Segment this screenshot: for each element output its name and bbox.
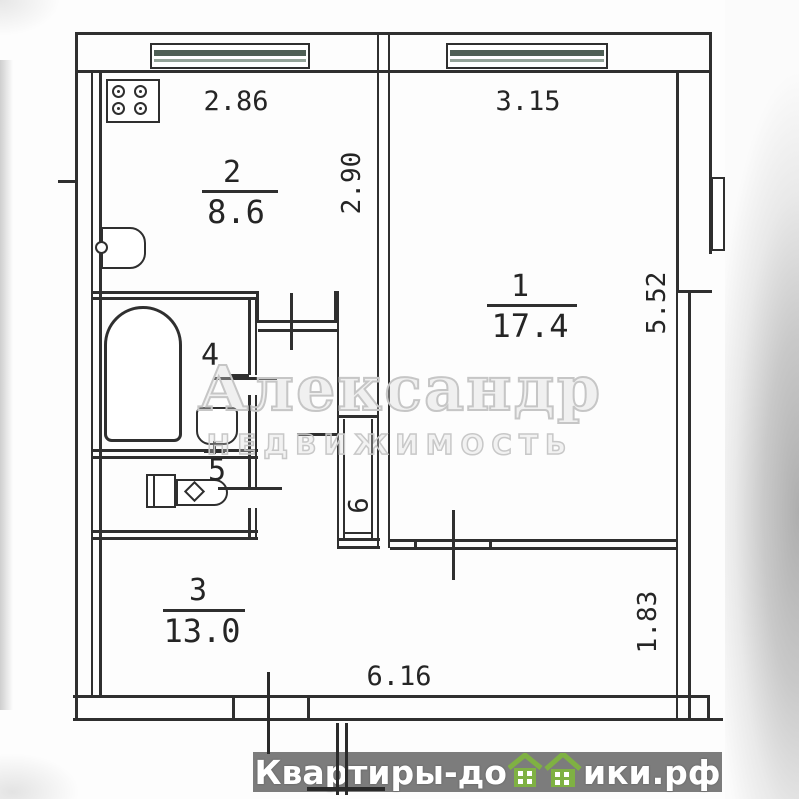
room2-area: 8.6 bbox=[196, 196, 276, 228]
left-wall-outer-line bbox=[75, 32, 78, 721]
closet-bottom-b bbox=[337, 546, 380, 549]
kitchen-door-icon bbox=[290, 293, 293, 350]
room1-area: 17.4 bbox=[482, 310, 578, 342]
dim-room1-width: 3.15 bbox=[478, 88, 578, 115]
kitchen-window-icon bbox=[150, 43, 310, 69]
room1-window-icon bbox=[446, 43, 608, 69]
room1-door-jamb-left bbox=[414, 539, 417, 550]
room3-number: 3 bbox=[178, 576, 218, 606]
room1-door-icon bbox=[452, 510, 455, 580]
kitchen-window-glass-line2 bbox=[154, 59, 306, 62]
toilet-bottom-wall-a bbox=[92, 530, 258, 533]
right-wall-double-b bbox=[688, 290, 691, 720]
scan-shadow-bottomleft bbox=[0, 730, 120, 799]
bottom-wall-lower-line bbox=[73, 718, 723, 721]
scan-shadow-left-strip bbox=[0, 60, 13, 710]
left-wall-tick bbox=[58, 180, 77, 183]
dim-kitchen-width: 2.86 bbox=[186, 88, 286, 115]
wetwall-a-seg3 bbox=[248, 508, 251, 540]
stair-mark-v2 bbox=[345, 723, 348, 795]
stove-burner-dot bbox=[117, 107, 120, 110]
room2-number: 2 bbox=[212, 158, 252, 188]
stove-burner-dot bbox=[139, 107, 142, 110]
stair-mark-v1 bbox=[336, 723, 339, 795]
kitchen-room1-divider-a bbox=[377, 35, 379, 293]
stove-burner-dot bbox=[139, 90, 142, 93]
kitchen-window-glass-line bbox=[154, 50, 306, 56]
room1-right-wall bbox=[676, 70, 679, 293]
kitchen-sink-tap-icon bbox=[95, 241, 108, 254]
right-wall-double-a bbox=[676, 290, 678, 720]
footer-text-right: ики.рф bbox=[583, 756, 721, 789]
bottom-wall-cap bbox=[707, 695, 710, 721]
footer-banner: Квартиры-до ики.рф bbox=[253, 752, 722, 792]
entrance-jamb-right bbox=[307, 695, 310, 721]
dim-total-width: 6.16 bbox=[349, 663, 449, 690]
dim-hall-depth: 1.83 bbox=[635, 587, 661, 657]
room1-window-glass-line bbox=[450, 50, 604, 56]
room3-area: 13.0 bbox=[156, 615, 248, 647]
scan-shadow-right bbox=[725, 0, 799, 799]
stair-mark-h bbox=[307, 787, 385, 791]
wetwall-b-seg3 bbox=[255, 508, 257, 540]
room1-window-glass-line2 bbox=[450, 59, 604, 62]
top-wall-inner-line bbox=[75, 70, 712, 73]
toilet-bottom-wall-b bbox=[92, 537, 258, 540]
room1-number: 1 bbox=[500, 272, 540, 302]
dim-kitchen-depth: 2.90 bbox=[339, 148, 365, 218]
green-houses-icon bbox=[508, 753, 582, 789]
room5-underline bbox=[218, 487, 282, 490]
kitchen-bottom-wall-a bbox=[92, 291, 258, 294]
room1-bottom-wall-a bbox=[390, 539, 678, 542]
entrance-jamb-left bbox=[232, 695, 235, 721]
room1-bottom-wall-b bbox=[390, 547, 678, 550]
stove-burner-dot bbox=[117, 90, 120, 93]
floor-plan-scan: 2 8.6 1 17.4 3 13.0 4 5 6 2.86 3.15 2.90… bbox=[0, 0, 799, 799]
right-wall-connector bbox=[678, 290, 712, 293]
toilet-tank-line bbox=[153, 474, 155, 508]
scan-shadow-topleft bbox=[0, 0, 100, 60]
kitchen-door-lintel-b bbox=[258, 329, 337, 332]
kitchen-room1-divider-b bbox=[388, 35, 390, 293]
room1-door-jamb-right bbox=[489, 539, 492, 550]
left-wall-inner-line-b bbox=[99, 70, 102, 697]
bathtub-icon bbox=[104, 306, 182, 442]
bottom-wall-outer-line bbox=[73, 695, 710, 698]
watermark-subtitle: НЕДВИЖИМОСТЬ bbox=[180, 428, 600, 461]
room6-number: 6 bbox=[346, 486, 373, 526]
top-wall-outer-line bbox=[75, 32, 712, 35]
entrance-door-icon bbox=[267, 672, 270, 754]
left-wall-inner-line-a bbox=[91, 70, 93, 697]
toilet-tank-icon bbox=[146, 474, 176, 508]
footer-text-left: Квартиры-до bbox=[254, 756, 506, 789]
kitchen-door-lintel-a bbox=[258, 320, 337, 323]
closet-bottom-a bbox=[337, 538, 380, 541]
dim-room1-depth: 5.52 bbox=[644, 268, 670, 338]
right-wall-shaft bbox=[711, 177, 725, 251]
kitchen-bottom-wall-b bbox=[92, 297, 258, 300]
closet-inner-bottom bbox=[343, 532, 373, 534]
watermark-title: Александр bbox=[180, 352, 620, 425]
